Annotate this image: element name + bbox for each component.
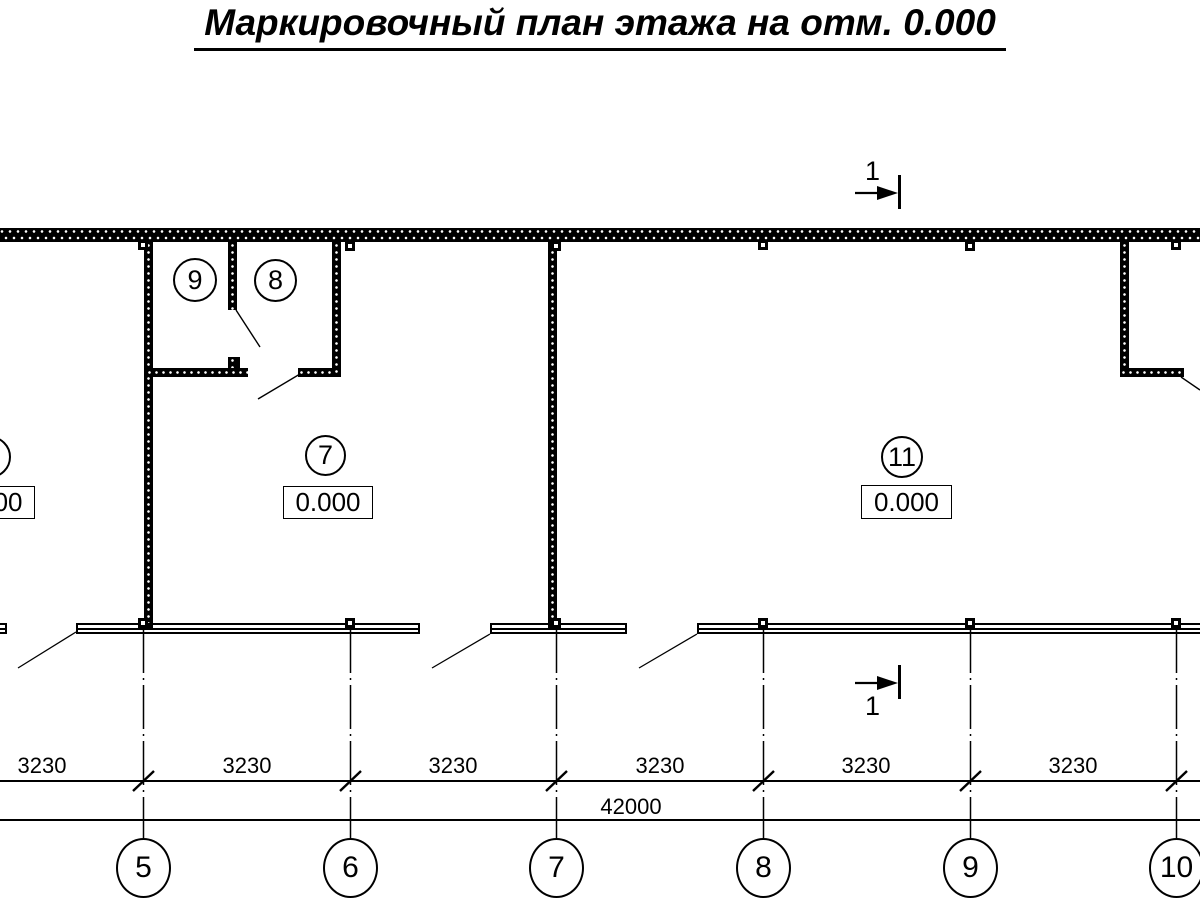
room8-right-wall [332, 242, 341, 377]
axis-label-5: 5 [135, 851, 152, 885]
linework-layer [0, 0, 1200, 900]
axis-square-bottom-7 [551, 618, 561, 628]
room-number-circle-8: 8 [254, 259, 297, 302]
axis-square-top-8 [758, 240, 768, 250]
right-room-wall-vertical [1120, 242, 1129, 377]
axis-square-bottom-9 [965, 618, 975, 628]
room-number-circle-9: 9 [173, 258, 217, 302]
room9-bottom-wall [146, 368, 248, 377]
elevation-box-left-partial: 0.000 [0, 486, 35, 519]
room-number-9: 9 [187, 265, 202, 296]
window-band-segment-0 [0, 623, 7, 634]
elevation-room11: 0.000 [874, 487, 939, 518]
axis-circle-9: 9 [943, 838, 998, 898]
axis-label-8: 8 [755, 851, 772, 885]
axis-square-top-6 [345, 241, 355, 251]
window-leader-lines [18, 632, 697, 668]
dim-bay-6: 3230 [1049, 753, 1098, 779]
axis-square-top-5 [138, 240, 148, 250]
partition-room9-room8 [228, 242, 237, 310]
axis-label-7: 7 [548, 851, 565, 885]
window-band-segment-3 [697, 623, 1200, 634]
elevation-room7: 0.000 [295, 487, 360, 518]
section-label-bottom: 1 [865, 691, 880, 722]
room-number-circle-7: 7 [305, 435, 346, 476]
wall-axis-7 [548, 242, 557, 628]
dim-bay-5: 3230 [842, 753, 891, 779]
axis-circle-8: 8 [736, 838, 791, 898]
room-number-8: 8 [268, 265, 283, 296]
door-jamb-stub [228, 357, 240, 368]
room-number-11: 11 [888, 442, 916, 473]
axis-square-top-10 [1171, 240, 1181, 250]
elevation-box-room7: 0.000 [283, 486, 373, 519]
dim-total: 42000 [600, 794, 661, 820]
axis-circle-6: 6 [323, 838, 378, 898]
axis-circle-10: 10 [1149, 838, 1200, 898]
wall-axis-5 [144, 242, 153, 628]
axis-square-bottom-8 [758, 618, 768, 628]
room-number-7: 7 [318, 440, 333, 471]
axis-circle-5: 5 [116, 838, 171, 898]
dim-bay-1: 3230 [18, 753, 67, 779]
elevation-box-room11: 0.000 [861, 485, 952, 519]
dim-bay-4: 3230 [636, 753, 685, 779]
axis-square-bottom-6 [345, 618, 355, 628]
axis-square-bottom-10 [1171, 618, 1181, 628]
section-label-top: 1 [865, 156, 880, 187]
floor-plan-page: Маркировочный план этажа на отм. 0.000 [0, 0, 1200, 900]
door-leaf-lines [236, 310, 1200, 399]
axis-label-10: 10 [1160, 851, 1193, 885]
axis-label-9: 9 [962, 851, 979, 885]
axis-square-top-7 [551, 241, 561, 251]
axis-label-6: 6 [342, 851, 359, 885]
axis-square-bottom-5 [138, 618, 148, 628]
right-room-wall-horizontal [1120, 368, 1184, 377]
room-number-circle-11: 11 [881, 436, 923, 478]
window-band-segment-1 [76, 623, 420, 634]
dim-bay-2: 3230 [223, 753, 272, 779]
axis-square-top-9 [965, 241, 975, 251]
axis-circle-7: 7 [529, 838, 584, 898]
dim-bay-3: 3230 [429, 753, 478, 779]
elevation-left: 0.000 [0, 487, 23, 518]
exterior-wall-top [0, 228, 1200, 242]
